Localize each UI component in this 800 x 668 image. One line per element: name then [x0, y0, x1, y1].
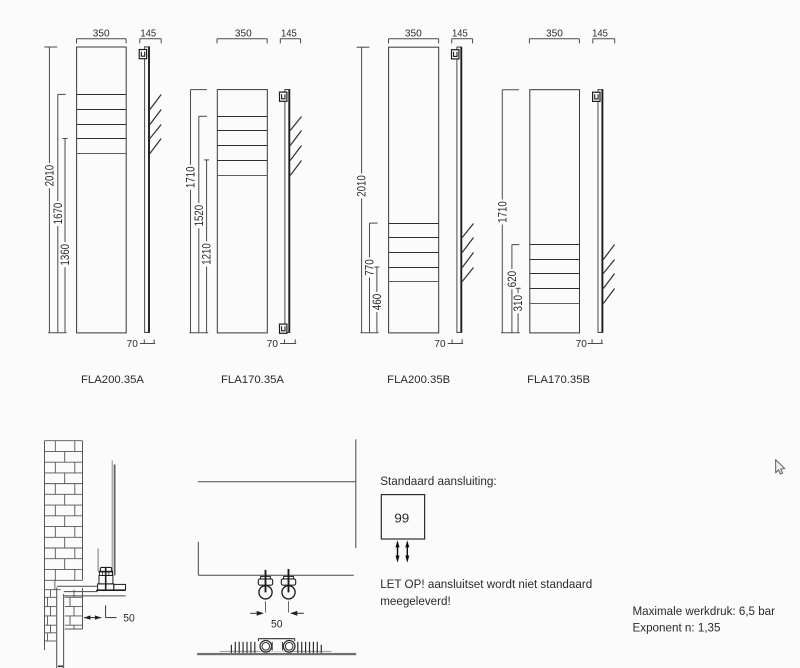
- svg-text:FLA170.35B: FLA170.35B: [527, 374, 590, 386]
- svg-text:350: 350: [546, 27, 563, 39]
- svg-text:FLA200.35B: FLA200.35B: [387, 374, 450, 386]
- svg-text:99: 99: [394, 511, 409, 526]
- svg-text:350: 350: [235, 27, 252, 39]
- svg-text:1710: 1710: [497, 201, 509, 223]
- svg-text:Maximale werkdruk: 6,5 bar: Maximale werkdruk: 6,5 bar: [633, 604, 776, 618]
- svg-text:1360: 1360: [60, 244, 72, 266]
- svg-text:1710: 1710: [186, 166, 198, 188]
- svg-text:FLA200.35A: FLA200.35A: [81, 374, 145, 386]
- svg-text:2010: 2010: [45, 165, 57, 187]
- svg-text:LET OP! aansluitset wordt niet: LET OP! aansluitset wordt niet standaard: [380, 577, 592, 591]
- svg-text:350: 350: [405, 27, 422, 39]
- svg-text:70: 70: [267, 338, 278, 350]
- svg-text:meegeleverd!: meegeleverd!: [380, 594, 451, 608]
- svg-text:70: 70: [434, 338, 445, 350]
- svg-text:145: 145: [281, 27, 297, 39]
- svg-text:1210: 1210: [202, 243, 214, 265]
- svg-text:70: 70: [127, 338, 138, 350]
- svg-text:310: 310: [513, 295, 525, 312]
- svg-text:50: 50: [271, 619, 283, 631]
- svg-text:FLA170.35A: FLA170.35A: [221, 374, 285, 386]
- svg-text:1670: 1670: [53, 203, 65, 225]
- svg-text:Standaard aansluiting:: Standaard aansluiting:: [380, 474, 497, 488]
- svg-text:1520: 1520: [194, 205, 206, 227]
- svg-text:145: 145: [452, 27, 468, 39]
- svg-text:350: 350: [93, 27, 110, 39]
- svg-text:620: 620: [507, 271, 519, 288]
- svg-text:50: 50: [123, 613, 135, 625]
- svg-text:145: 145: [592, 27, 608, 39]
- svg-text:460: 460: [372, 294, 384, 311]
- svg-text:145: 145: [140, 27, 156, 39]
- svg-text:Exponent n: 1,35: Exponent n: 1,35: [633, 621, 721, 635]
- svg-text:70: 70: [576, 338, 587, 350]
- svg-text:2010: 2010: [357, 175, 369, 197]
